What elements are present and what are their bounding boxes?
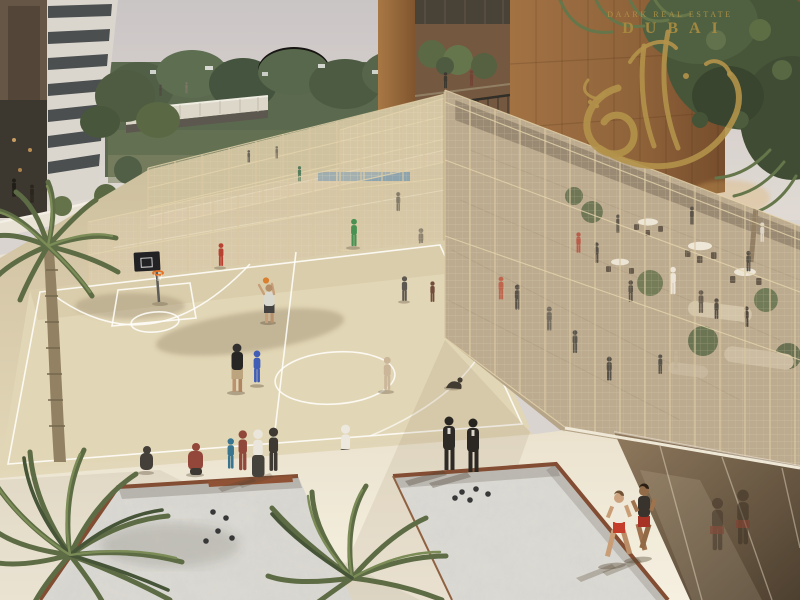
- scene-canvas: [0, 0, 800, 600]
- tone-overlay: [0, 0, 800, 600]
- architectural-rendering: DAARK REAL ESTATE DUBAI: [0, 0, 800, 600]
